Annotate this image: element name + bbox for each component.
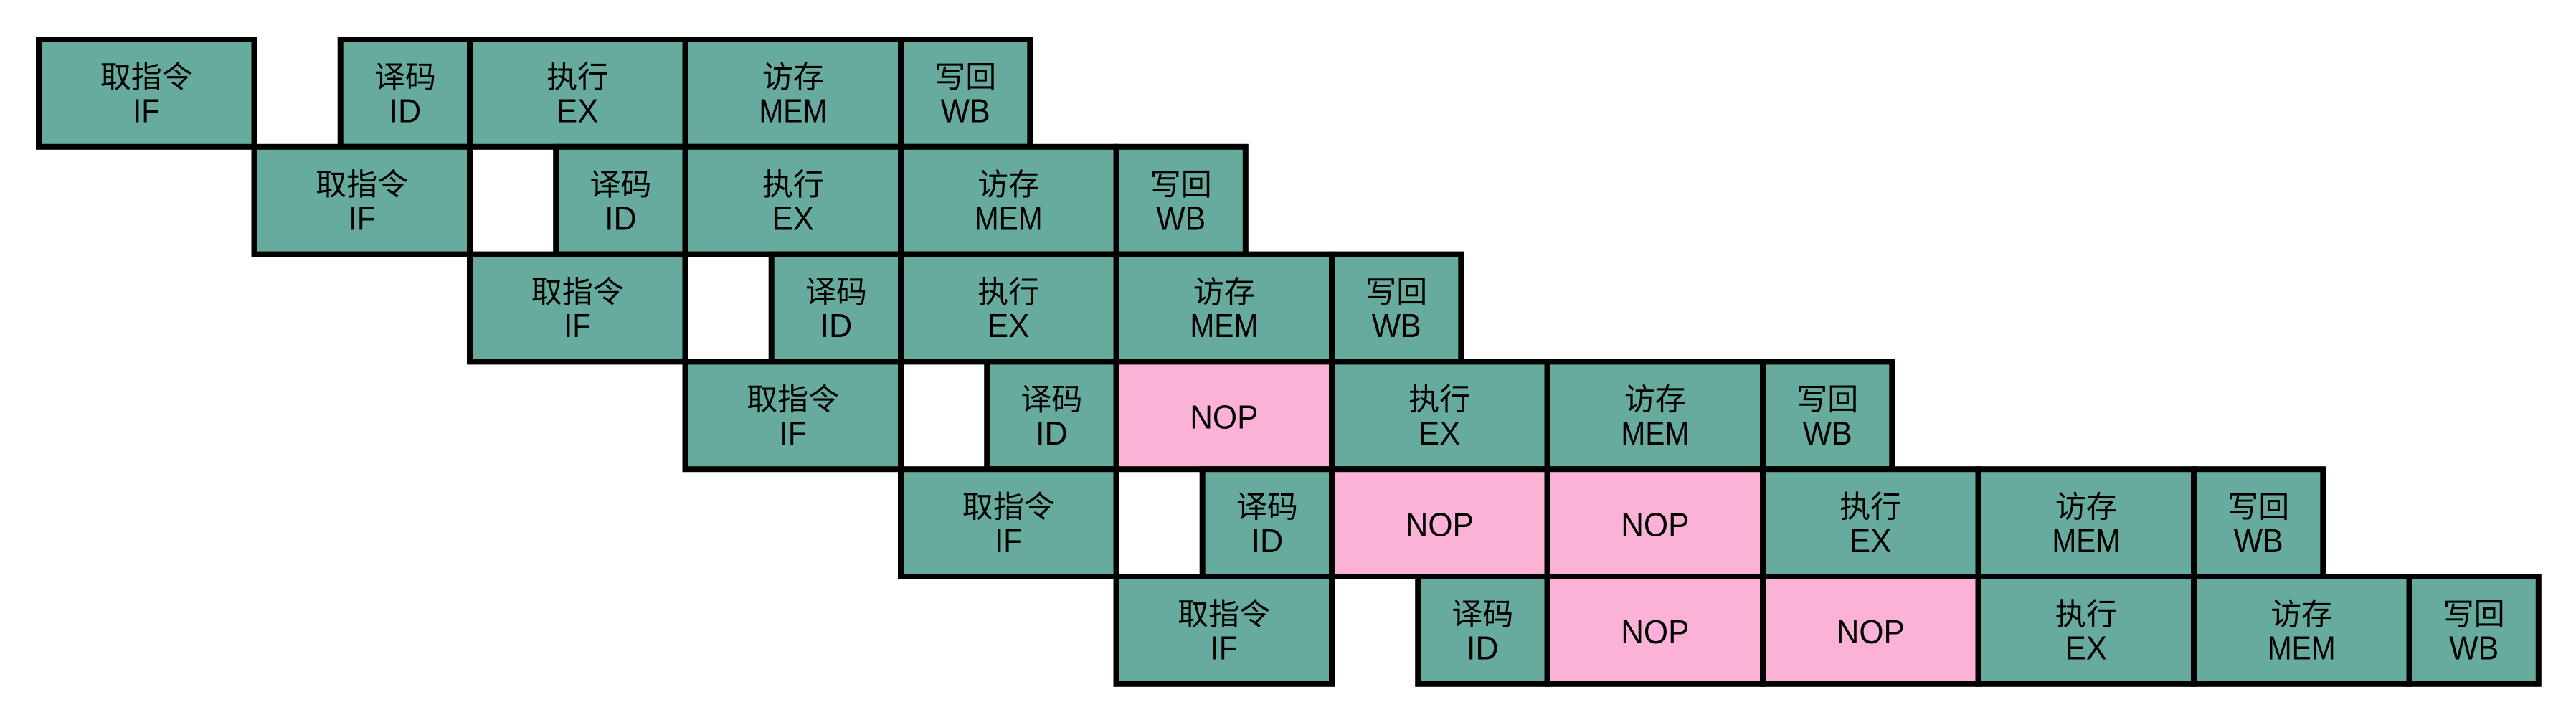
svg-text:IF: IF <box>349 201 375 237</box>
svg-text:IF: IF <box>1211 630 1237 667</box>
svg-text:IF: IF <box>564 308 591 344</box>
svg-text:ID: ID <box>820 308 853 345</box>
svg-text:ID: ID <box>1251 522 1284 559</box>
svg-text:IF: IF <box>780 415 806 452</box>
svg-text:EX: EX <box>1419 414 1460 452</box>
svg-text:MEM: MEM <box>1190 308 1258 345</box>
svg-text:NOP: NOP <box>1190 399 1258 436</box>
svg-text:MEM: MEM <box>759 93 827 130</box>
svg-text:IF: IF <box>133 93 160 130</box>
svg-text:MEM: MEM <box>1621 416 1689 452</box>
svg-text:EX: EX <box>988 307 1029 344</box>
svg-text:WB: WB <box>1803 416 1852 452</box>
svg-text:ID: ID <box>605 200 637 237</box>
svg-text:ID: ID <box>1467 630 1499 667</box>
svg-text:NOP: NOP <box>1406 506 1474 543</box>
svg-text:WB: WB <box>1156 201 1206 237</box>
svg-text:MEM: MEM <box>975 201 1043 237</box>
svg-text:WB: WB <box>941 93 990 130</box>
svg-text:WB: WB <box>1372 308 1421 345</box>
svg-text:ID: ID <box>1036 414 1068 452</box>
svg-text:EX: EX <box>772 199 814 237</box>
svg-text:NOP: NOP <box>1837 613 1905 650</box>
svg-text:IF: IF <box>995 523 1022 559</box>
svg-text:ID: ID <box>389 93 422 130</box>
svg-text:EX: EX <box>1850 522 1891 559</box>
svg-text:NOP: NOP <box>1621 506 1689 543</box>
svg-text:NOP: NOP <box>1621 613 1689 650</box>
svg-text:WB: WB <box>2234 523 2283 559</box>
svg-text:MEM: MEM <box>2268 630 2336 667</box>
svg-text:EX: EX <box>2065 630 2107 667</box>
svg-text:EX: EX <box>557 93 598 130</box>
svg-text:MEM: MEM <box>2052 523 2120 560</box>
svg-text:WB: WB <box>2449 630 2499 667</box>
